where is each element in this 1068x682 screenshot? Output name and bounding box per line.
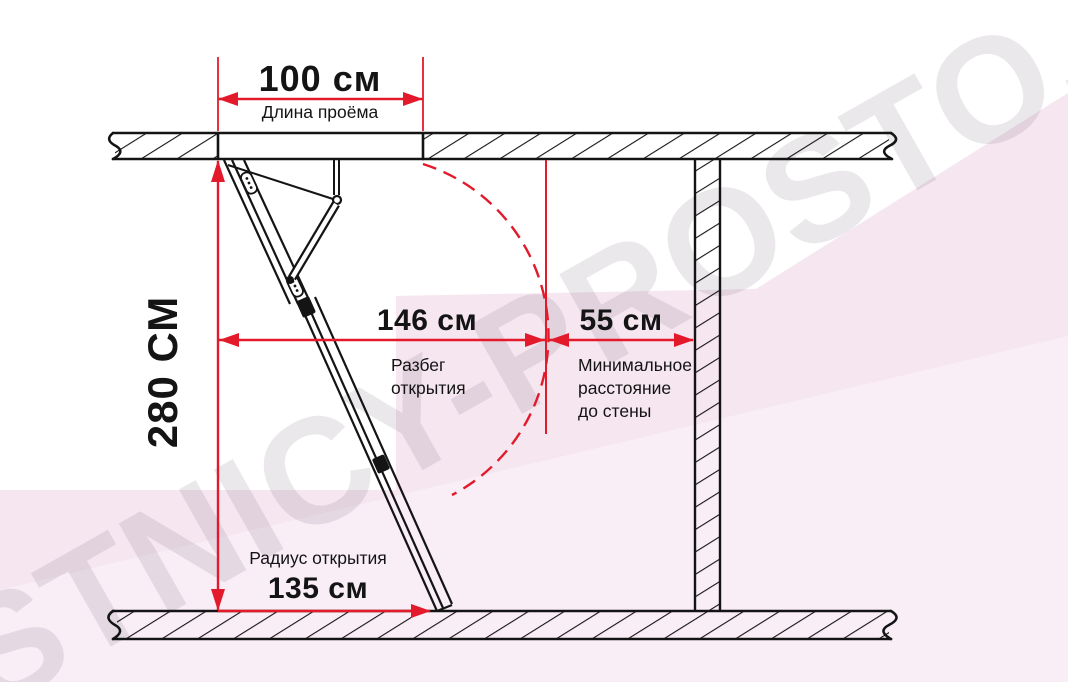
wall-clearance-caption: Минимальное расстояние до стены	[578, 354, 692, 423]
opening-radius-caption: Радиус открытия	[249, 547, 387, 570]
attic-ladder-dimension-diagram: LESTNICY-PROSTO.RU	[0, 0, 1068, 682]
opening-swing-value: 146 см	[377, 304, 477, 338]
opening-width-value: 100 см	[259, 58, 382, 100]
ceiling-slab	[109, 133, 896, 159]
wall	[695, 160, 720, 611]
ceiling-height-value: 280 СМ	[139, 296, 187, 449]
floor-slab	[108, 611, 896, 639]
opening-width-caption: Длина проёма	[262, 101, 379, 124]
opening-radius-value: 135 см	[268, 572, 368, 606]
opening-swing-caption: Разбег открытия	[391, 354, 466, 400]
wall-clearance-value: 55 см	[579, 304, 662, 338]
